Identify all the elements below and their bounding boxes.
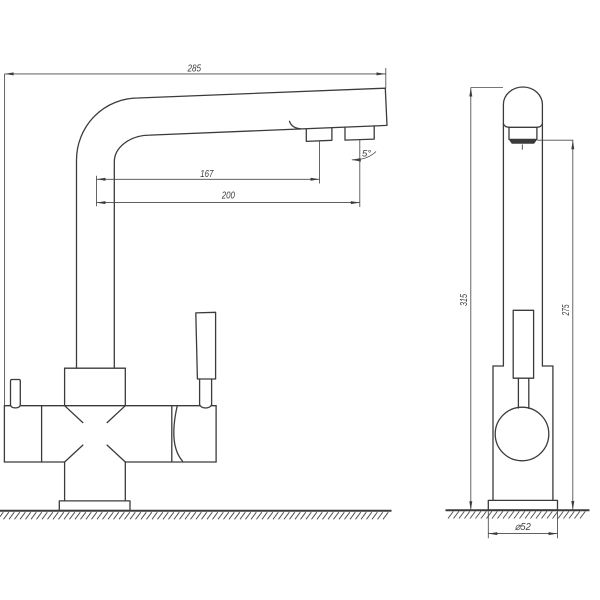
svg-text:200: 200 — [221, 190, 235, 202]
svg-text:167: 167 — [200, 168, 214, 180]
svg-text:275: 275 — [560, 304, 572, 316]
svg-text:5°: 5° — [362, 148, 371, 159]
svg-text:285: 285 — [187, 63, 201, 75]
svg-text:⌀52: ⌀52 — [515, 521, 531, 533]
svg-text:315: 315 — [458, 294, 470, 306]
